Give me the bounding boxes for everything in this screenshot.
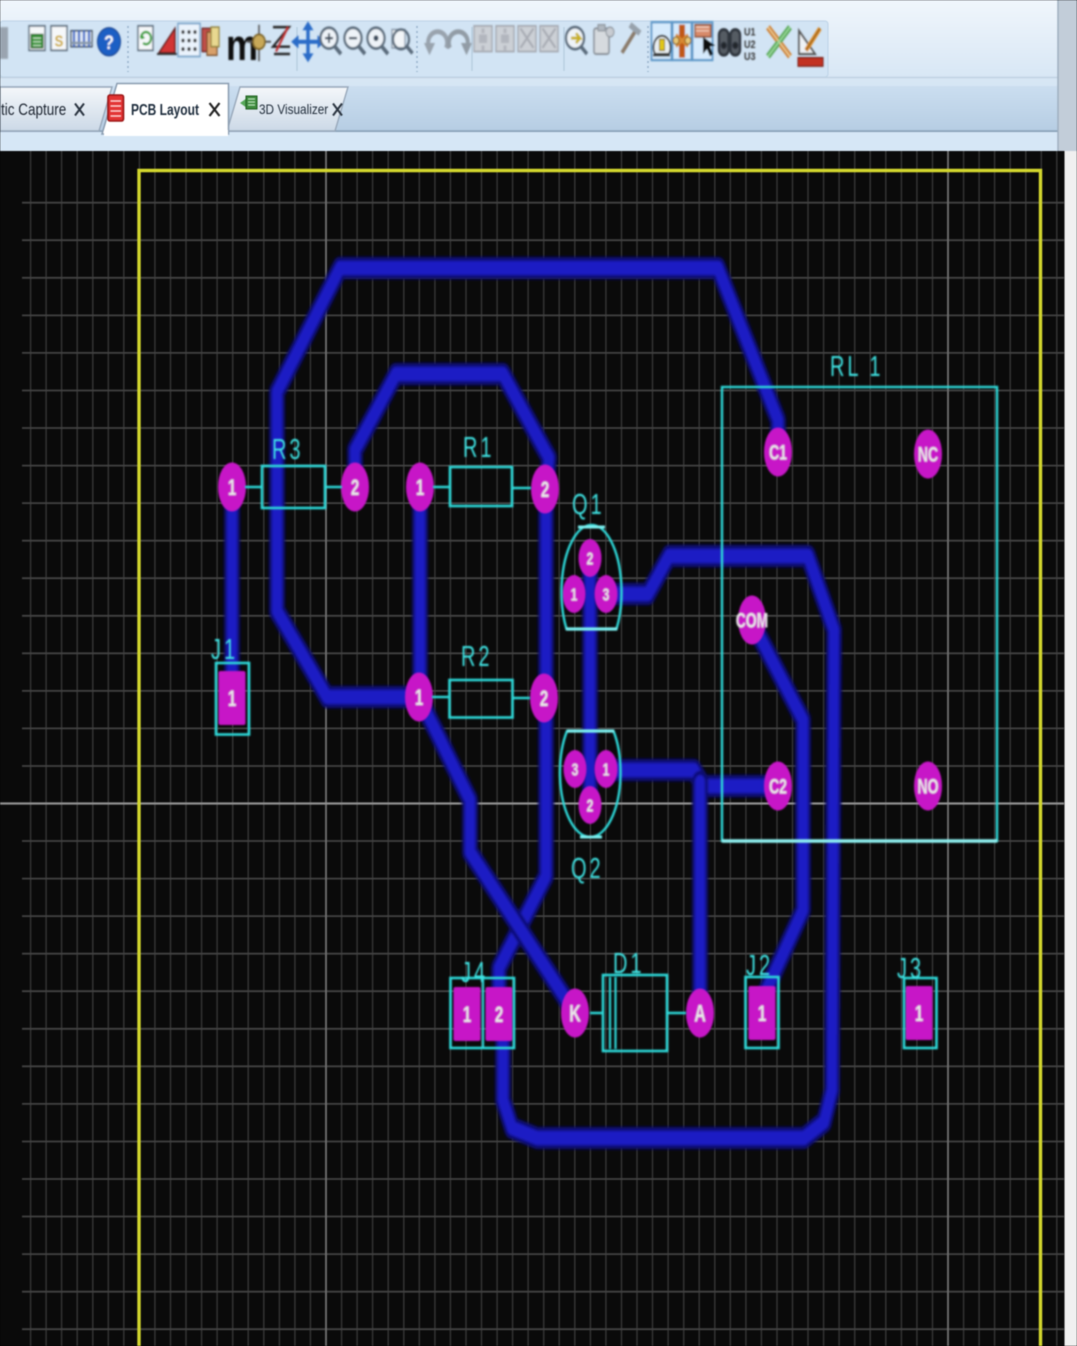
svg-text:1: 1 [228,687,237,712]
svg-text:?: ? [104,32,114,54]
svg-text:A: A [694,1002,706,1028]
svg-text:1: 1 [463,1003,472,1028]
svg-text:1: 1 [416,476,425,501]
svg-text:1: 1 [571,585,578,605]
svg-text:2: 2 [587,796,594,816]
svg-text:1: 1 [415,686,424,711]
svg-text:2: 2 [495,1003,503,1028]
svg-text:K: K [569,1002,581,1028]
svg-text:R3: R3 [272,433,304,466]
svg-text:1: 1 [915,1002,924,1027]
svg-text:Q1: Q1 [572,488,605,521]
svg-text:2: 2 [540,687,548,712]
svg-text:U1: U1 [744,27,756,39]
svg-text:C2: C2 [769,775,787,799]
svg-text:J2: J2 [746,949,773,982]
svg-text:D1: D1 [613,947,645,980]
svg-text:R1: R1 [463,431,495,464]
svg-text:J3: J3 [897,952,924,985]
svg-text:U2: U2 [744,39,756,51]
svg-text:NC: NC [918,443,938,467]
svg-text:R2: R2 [461,640,493,673]
svg-text:J4: J4 [461,956,488,989]
svg-text:2: 2 [351,476,359,501]
svg-text:2: 2 [587,549,594,569]
svg-text:3D Visualizer: 3D Visualizer [259,101,329,117]
svg-text:RL 1: RL 1 [830,350,883,383]
svg-text:Q2: Q2 [571,852,604,885]
svg-text:3: 3 [603,585,610,605]
svg-text:S: S [55,34,64,51]
svg-text:2: 2 [541,478,549,503]
svg-text:NO: NO [918,775,939,799]
svg-text:PCB Layout: PCB Layout [131,100,199,118]
svg-text:COM: COM [736,609,769,633]
svg-text:1: 1 [603,760,610,780]
svg-text:1: 1 [758,1002,767,1027]
svg-text:U3: U3 [744,51,756,63]
svg-text:3: 3 [572,760,579,780]
svg-text:C1: C1 [769,441,787,465]
svg-text:1: 1 [228,476,237,501]
svg-text:J1: J1 [211,633,238,666]
svg-text:tic Capture: tic Capture [1,102,66,119]
